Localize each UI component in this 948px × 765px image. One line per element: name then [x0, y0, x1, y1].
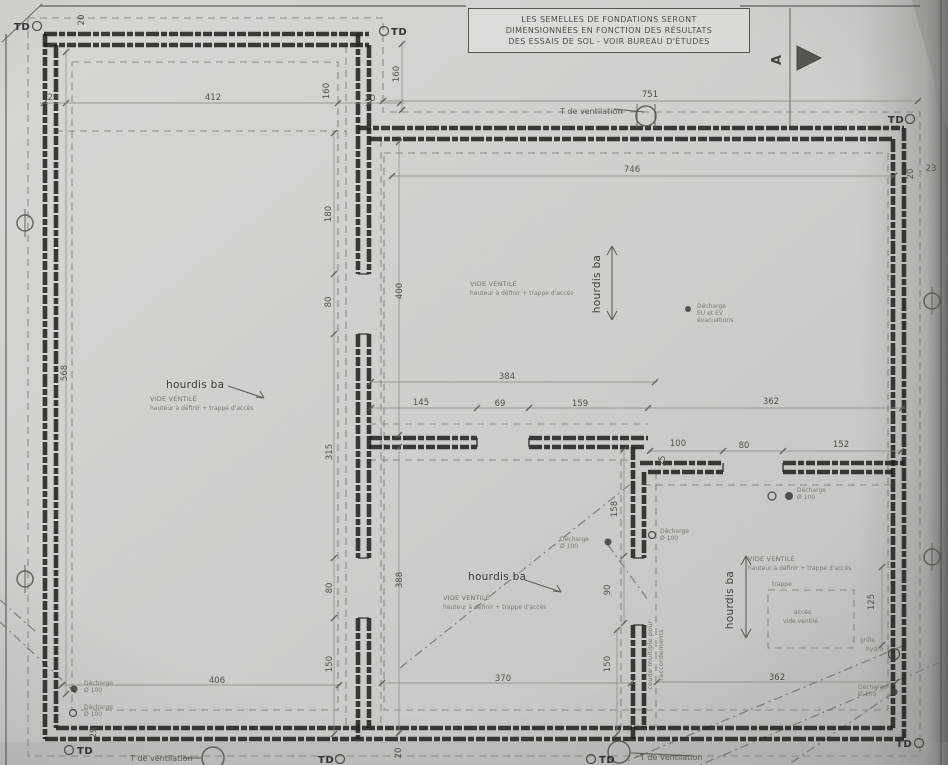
dim-label: 152: [833, 440, 849, 450]
td-marker-top-mid: TD: [391, 27, 407, 38]
dim-label: 362: [769, 673, 785, 683]
dim-label: 80: [324, 297, 334, 308]
dim-label: 362: [763, 397, 779, 407]
scanned-foundation-plan: hourdis bahourdis bahourdis bahourdis ba…: [0, 0, 948, 765]
td-marker-bottom-mid2: TD: [599, 755, 615, 765]
dim-label: 158: [610, 501, 620, 517]
dim-label: 568: [60, 365, 70, 381]
dim-label: 159: [572, 399, 588, 409]
td-marker-bottom-mid1: TD: [318, 755, 334, 765]
foundation-note-line-1: LES SEMELLES DE FONDATIONS SERONT: [475, 14, 743, 25]
dim-label: 25: [658, 456, 668, 467]
dim-label: 180: [324, 206, 334, 222]
dim-label: 100: [670, 439, 686, 449]
hourdis-label-3: hourdis ba: [468, 571, 526, 583]
t-ventilation-top: T de ventilation: [559, 107, 623, 116]
dim-label: 388: [395, 572, 405, 588]
dim-label: 23: [926, 164, 937, 174]
decharge-5b: Ø 100: [660, 535, 678, 542]
td-marker-bottom-left: TD: [77, 746, 93, 757]
decharge-3a: Décharge: [697, 303, 726, 310]
dim-label: 315: [325, 444, 335, 460]
dim-label: 400: [395, 283, 405, 299]
dim-label: 20: [77, 15, 87, 26]
hourdis-label-2: hourdis ba: [591, 255, 603, 313]
decharge-4a: Décharge: [560, 536, 589, 543]
decharge-3c: évacuations: [697, 317, 733, 324]
dim-label: 384: [499, 372, 515, 382]
t-ventilation-bottom-center: T de ventilation: [639, 753, 703, 762]
trappe-label: trappe: [772, 581, 792, 588]
hourdis-label-1: hourdis ba: [166, 379, 224, 391]
coude-multiple-a: coude multiple pour: [646, 620, 654, 689]
vide-ventile-2a: VIDE VENTILÉ: [470, 279, 517, 288]
acces-label-a: accès: [794, 609, 811, 616]
dim-label: 20: [365, 94, 376, 104]
dim-label: 751: [642, 90, 658, 100]
td-marker-top-left: TD: [14, 22, 30, 33]
dim-label: 20: [394, 748, 404, 759]
dim-label: 412: [205, 93, 221, 103]
grille-hydro-b: hydro: [866, 646, 883, 653]
decharge-2a: Décharge: [84, 704, 113, 711]
dim-label: 20: [906, 169, 916, 180]
decharge-5a: Décharge: [660, 528, 689, 535]
dim-label: 145: [413, 398, 429, 408]
section-a-label: A: [770, 55, 785, 65]
td-marker-bottom-right: TD: [896, 739, 912, 750]
acces-label-b: vide ventilé: [783, 618, 818, 625]
decharge-6a: Décharge: [797, 487, 826, 494]
decharge-6b: Ø 100: [797, 494, 815, 501]
vide-ventile-2b: hauteur à définir + trappe d'accès: [470, 290, 573, 297]
td-marker-right-top: TD: [888, 115, 904, 126]
dim-label: 80: [739, 441, 750, 451]
dim-label: 746: [624, 165, 640, 175]
foundation-note-line-2: DIMENSIONNÉES EN FONCTION DES RÉSULTATS: [475, 25, 743, 36]
dim-label: 69: [495, 399, 506, 409]
dim-label: 406: [209, 676, 225, 686]
decharge-1b: Ø 100: [84, 687, 102, 694]
decharge-3b: EU et EV: [697, 310, 724, 317]
dim-label: 150: [603, 656, 613, 672]
dim-label: 150: [325, 656, 335, 672]
dim-label: 160: [322, 83, 332, 99]
t-ventilation-bottom-left: T de ventilation: [129, 754, 193, 763]
decharge-7a: Décharge: [858, 684, 887, 691]
vide-ventile-3b: hauteur à définir + trappe d'accès: [443, 604, 546, 611]
hourdis-label-4: hourdis ba: [724, 571, 736, 629]
floor-plan-canvas: hourdis bahourdis bahourdis bahourdis ba…: [0, 0, 948, 765]
foundation-note-line-3: DES ESSAIS DE SOL - VOIR BUREAU D'ÉTUDES: [475, 36, 743, 47]
dim-label: 125: [867, 594, 877, 610]
decharge-4b: Ø 100: [560, 543, 578, 550]
decharge-7b: Ø 100: [858, 691, 876, 698]
vide-ventile-3a: VIDE VENTILÉ: [443, 593, 490, 602]
coude-multiple-b: raccordements: [657, 629, 665, 681]
paper-background: [0, 0, 948, 765]
dim-label: 160: [392, 66, 402, 82]
vide-ventile-4b: hauteur à définir + trappe d'accès: [748, 565, 851, 572]
vide-ventile-4a: VIDE VENTILÉ: [748, 554, 795, 563]
foundation-note: LES SEMELLES DE FONDATIONS SERONT DIMENS…: [468, 8, 750, 53]
vide-ventile-1a: VIDE VENTILÉ: [150, 394, 197, 403]
dim-label: 370: [495, 674, 511, 684]
decharge-1a: Décharge: [84, 680, 113, 687]
dim-label: 80: [325, 583, 335, 594]
grille-hydro-a: grille: [860, 637, 875, 644]
decharge-2b: Ø 100: [84, 711, 102, 718]
dim-label: 90: [603, 585, 613, 596]
dim-label: 29: [48, 93, 59, 103]
vide-ventile-1b: hauteur à définir + trappe d'accès: [150, 405, 253, 412]
dim-label: 29: [89, 728, 99, 739]
